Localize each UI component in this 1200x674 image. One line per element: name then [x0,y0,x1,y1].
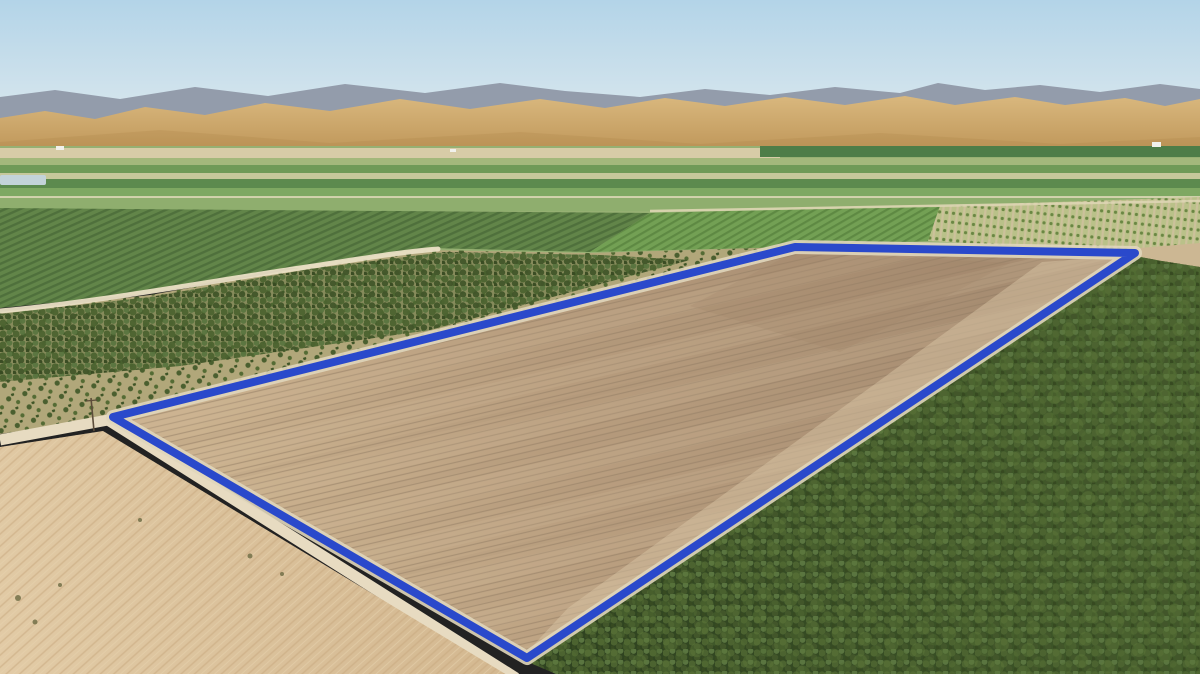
farm-building-3 [1152,142,1161,147]
field-strip-pale [0,148,780,158]
field-strip-3 [0,165,1200,173]
field-strip-6 [0,188,1200,197]
scrub-2 [33,620,38,625]
field-strip-teal [760,146,1200,157]
scrub-3 [58,583,62,587]
scrub-1 [15,595,21,601]
farm-building-2 [450,149,456,152]
aerial-photo-frame [0,0,1200,674]
aerial-photo [0,0,1200,674]
valley-road [0,196,1200,198]
scrub-6 [138,518,142,522]
pond [0,175,46,185]
field-strip-5 [0,179,1200,188]
scrub-4 [248,554,253,559]
scrub-5 [280,572,284,576]
field-strip-2 [0,158,1200,165]
field-strip-4 [0,173,1200,179]
farm-building-1 [56,146,64,150]
